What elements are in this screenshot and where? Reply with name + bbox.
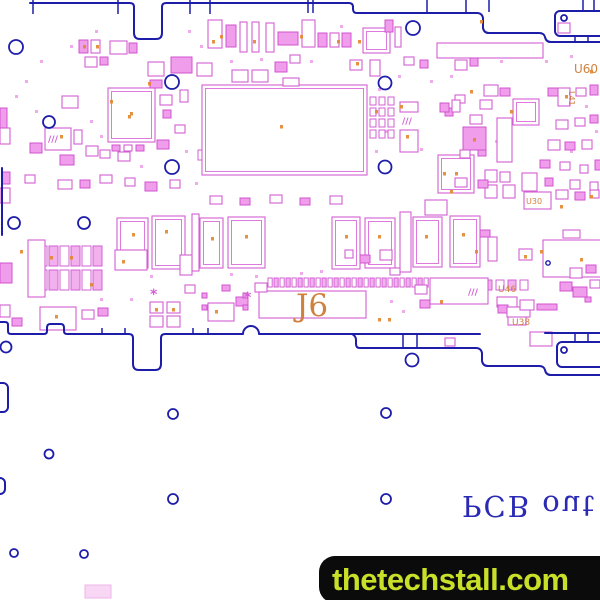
component-filled xyxy=(360,255,370,263)
pad-grid-pad xyxy=(379,108,385,116)
component-outline xyxy=(74,130,82,144)
pin-strip-pin xyxy=(60,246,69,266)
pin-strip-pin xyxy=(280,278,284,287)
pad-grid-pad xyxy=(388,97,394,105)
component-outline xyxy=(370,60,380,76)
component-filled xyxy=(2,172,10,184)
component-outline xyxy=(185,285,195,293)
micro-label-mark xyxy=(211,237,214,241)
via xyxy=(420,148,423,151)
micro-label-mark xyxy=(440,300,443,304)
pin-strip-pin xyxy=(520,280,528,290)
micro-label-mark xyxy=(280,125,283,129)
micro-label-mark xyxy=(565,95,568,99)
micro-label-mark xyxy=(560,205,563,209)
via xyxy=(230,273,233,276)
micro-label-mark xyxy=(245,235,248,239)
component-outline xyxy=(576,88,586,96)
component-outline xyxy=(82,310,94,319)
component-outline xyxy=(558,23,570,33)
pad-grid-pad xyxy=(379,130,385,138)
component-outline xyxy=(290,55,300,63)
component-filled xyxy=(420,60,428,68)
component-outline xyxy=(62,96,78,108)
component-outline xyxy=(580,165,588,173)
via xyxy=(40,60,43,63)
micro-label-mark xyxy=(50,256,53,260)
component-filled xyxy=(278,32,298,45)
component-outline xyxy=(560,162,570,170)
component-outline xyxy=(192,214,199,271)
via xyxy=(195,182,198,185)
via xyxy=(450,75,453,78)
component-outline xyxy=(520,300,534,310)
micro-label-mark xyxy=(128,115,131,119)
via xyxy=(595,130,598,133)
component-outline xyxy=(497,118,512,162)
pin-strip-pin xyxy=(286,278,290,287)
component-outline xyxy=(232,70,248,82)
component-filled xyxy=(585,297,591,302)
component-filled xyxy=(275,62,287,72)
component-outline xyxy=(460,150,470,158)
component-outline xyxy=(563,230,580,238)
component-filled xyxy=(240,198,250,205)
pin-strip-pin xyxy=(93,246,102,266)
component-outline xyxy=(556,120,568,129)
mounting-hole xyxy=(45,450,54,459)
component-symbol: * xyxy=(150,287,158,303)
via xyxy=(200,45,203,48)
component-filled xyxy=(590,85,598,95)
component-filled xyxy=(150,80,162,88)
mounting-hole xyxy=(379,161,392,174)
component-filled xyxy=(537,304,557,310)
pin-strip-pin xyxy=(298,278,302,287)
component-filled xyxy=(300,198,310,205)
via xyxy=(100,135,103,138)
via xyxy=(100,298,103,301)
micro-label-mark xyxy=(122,260,125,264)
component-filled xyxy=(60,155,74,165)
ref-designator-label: U46 xyxy=(498,285,516,295)
pad-grid-pad xyxy=(379,119,385,127)
pin-strip-pin xyxy=(310,278,314,287)
ref-designator-label: U30 xyxy=(526,197,542,206)
chip-outer xyxy=(332,217,360,269)
micro-label-mark xyxy=(400,105,403,109)
micro-label-mark xyxy=(378,235,381,239)
micro-label-mark xyxy=(590,195,593,199)
component-outline xyxy=(210,196,222,204)
component-outline xyxy=(488,237,497,261)
micro-label-mark xyxy=(406,135,409,139)
ref-designator-label: L41 xyxy=(567,91,576,106)
micro-label-mark xyxy=(300,35,303,39)
component-outline xyxy=(125,178,135,186)
via xyxy=(150,275,153,278)
component-outline xyxy=(437,43,543,58)
component-outline xyxy=(455,178,467,187)
micro-label-mark xyxy=(388,318,391,322)
component-symbol: /// xyxy=(48,135,59,145)
component-outline xyxy=(404,57,414,65)
via xyxy=(90,120,93,123)
component-outline xyxy=(590,182,598,190)
component-filled xyxy=(595,160,600,170)
component-filled xyxy=(30,143,42,153)
component-filled xyxy=(0,108,7,130)
component-filled xyxy=(470,58,478,66)
component-outline xyxy=(252,22,259,52)
component-filled xyxy=(222,285,230,291)
component-outline xyxy=(302,20,315,47)
component-outline xyxy=(115,250,147,270)
component-filled xyxy=(0,263,12,283)
component-filled xyxy=(80,180,90,188)
component-pale xyxy=(85,585,111,598)
pin-strip-pin xyxy=(334,278,338,287)
micro-label-mark xyxy=(130,112,133,116)
micro-label-mark xyxy=(356,62,359,66)
mounting-hole xyxy=(165,160,179,174)
component-outline xyxy=(0,128,10,144)
via xyxy=(185,150,188,153)
component-outline xyxy=(548,140,560,150)
component-outline xyxy=(575,118,585,126)
mounting-hole xyxy=(165,75,179,89)
component-filled xyxy=(157,140,169,149)
component-outline xyxy=(500,172,510,182)
component-outline xyxy=(167,316,180,327)
micro-label-mark xyxy=(425,235,428,239)
via xyxy=(545,60,548,63)
via xyxy=(70,45,73,48)
component-outline xyxy=(590,280,600,288)
component-filled xyxy=(202,305,207,310)
via xyxy=(25,80,28,83)
via xyxy=(390,300,393,303)
micro-label-mark xyxy=(470,90,473,94)
component-outline xyxy=(180,90,188,102)
component-outline xyxy=(85,57,97,67)
ref-designator-label: U60 xyxy=(574,62,598,76)
pin-strip-pin xyxy=(328,278,332,287)
component-outline xyxy=(415,285,427,294)
pin-strip-pin xyxy=(304,278,308,287)
micro-label-mark xyxy=(480,20,483,24)
via xyxy=(188,30,191,33)
mounting-hole xyxy=(561,15,567,21)
mounting-hole xyxy=(78,217,90,229)
component-filled xyxy=(342,33,351,47)
micro-label-mark xyxy=(132,233,135,237)
component-filled xyxy=(171,57,192,73)
mounting-hole xyxy=(10,549,18,557)
ref-designator-label: U38 xyxy=(512,318,530,328)
micro-label-mark xyxy=(450,190,453,194)
via xyxy=(310,60,313,63)
pin-strip-pin xyxy=(60,270,69,290)
pin-strip-pin xyxy=(316,278,320,287)
component-filled xyxy=(478,180,488,188)
component-filled xyxy=(136,145,144,151)
component-filled xyxy=(480,230,490,237)
micro-label-mark xyxy=(148,82,151,86)
via xyxy=(340,25,343,28)
component-filled xyxy=(163,110,171,118)
micro-label-mark xyxy=(443,172,446,176)
pin-strip-pin xyxy=(388,278,392,287)
micro-label-mark xyxy=(510,110,513,114)
component-filled xyxy=(420,300,430,308)
component-symbol: /// xyxy=(468,288,479,298)
micro-label-mark xyxy=(378,318,381,322)
component-symbol: /// xyxy=(402,117,413,127)
micro-label-mark xyxy=(96,45,99,49)
component-outline xyxy=(28,240,45,297)
component-outline xyxy=(86,146,98,156)
via xyxy=(260,58,263,61)
micro-label-mark xyxy=(212,40,215,44)
via xyxy=(15,95,18,98)
component-outline xyxy=(110,41,127,54)
component-outline xyxy=(240,22,247,52)
component-filled xyxy=(548,88,558,96)
pin-strip-pin xyxy=(370,278,374,287)
via xyxy=(402,310,405,313)
via xyxy=(230,60,233,63)
micro-label-mark xyxy=(540,250,543,254)
micro-label-mark xyxy=(83,45,86,49)
component-outline xyxy=(425,200,447,215)
pad-grid-pad xyxy=(370,97,376,105)
component-outline xyxy=(556,190,568,199)
component-outline xyxy=(400,212,411,272)
micro-label-mark xyxy=(90,283,93,287)
mounting-hole xyxy=(168,409,178,419)
component-filled xyxy=(478,150,486,156)
pin-strip-pin xyxy=(93,270,102,290)
mounting-hole xyxy=(1,342,12,353)
component-outline xyxy=(480,100,492,109)
component-outline xyxy=(582,140,592,149)
component-outline xyxy=(175,125,185,133)
component-outline xyxy=(430,278,488,304)
micro-label-mark xyxy=(345,235,348,239)
chip-outer xyxy=(202,85,367,175)
pad-grid-pad xyxy=(388,119,394,127)
component-filled xyxy=(12,318,22,326)
micro-label-mark xyxy=(70,256,73,260)
component-outline xyxy=(252,70,268,82)
pin-strip-pin xyxy=(71,270,80,290)
component-outline xyxy=(503,185,515,198)
component-filled xyxy=(590,115,598,123)
component-outline xyxy=(522,173,537,191)
component-outline xyxy=(208,303,234,321)
via xyxy=(95,30,98,33)
pin-strip-pin xyxy=(358,278,362,287)
component-filled xyxy=(202,293,207,298)
pin-strip-pin xyxy=(274,278,278,287)
component-outline xyxy=(400,130,418,152)
pin-strip-pin xyxy=(382,278,386,287)
mounting-hole xyxy=(381,494,391,504)
pin-strip-pin xyxy=(49,270,58,290)
component-filled xyxy=(226,25,236,47)
pin-strip-pin xyxy=(352,278,356,287)
connector-outline xyxy=(0,478,5,494)
via xyxy=(570,55,573,58)
component-outline xyxy=(530,332,552,346)
micro-label-mark xyxy=(358,40,361,44)
pin-strip-pin xyxy=(364,278,368,287)
pin-strip-pin xyxy=(292,278,296,287)
pin-strip-pin xyxy=(400,278,404,287)
micro-label-mark xyxy=(462,233,465,237)
mounting-hole xyxy=(43,116,55,128)
via xyxy=(500,60,503,63)
component-filled xyxy=(575,192,585,200)
pin-strip-pin xyxy=(322,278,326,287)
chip-outer xyxy=(450,216,480,267)
component-outline xyxy=(330,196,342,204)
component-filled xyxy=(565,142,575,150)
via xyxy=(140,165,143,168)
component-outline xyxy=(390,268,400,275)
mounting-hole xyxy=(80,550,88,558)
component-outline xyxy=(150,316,163,327)
component-outline xyxy=(208,20,222,48)
watermark-banner: thetechstall.com xyxy=(319,556,600,600)
connector-outline xyxy=(0,383,8,412)
mounting-hole xyxy=(406,354,419,367)
micro-label-mark xyxy=(215,310,218,314)
component-filled xyxy=(112,145,120,151)
component-filled xyxy=(573,287,587,297)
ref-designator-label: J6 xyxy=(293,288,328,324)
component-outline xyxy=(0,305,10,317)
micro-label-mark xyxy=(20,250,23,254)
component-outline xyxy=(283,78,299,86)
pin-strip-pin xyxy=(376,278,380,287)
mounting-hole xyxy=(379,77,392,90)
pin-strip-pin xyxy=(268,278,272,287)
micro-label-mark xyxy=(455,172,458,176)
via xyxy=(585,105,588,108)
component-filled xyxy=(500,88,510,96)
component-outline xyxy=(180,255,192,275)
component-outline xyxy=(25,175,35,183)
mounting-hole xyxy=(9,40,23,54)
via xyxy=(35,110,38,113)
micro-label-mark xyxy=(155,308,158,312)
component-filled xyxy=(440,103,449,112)
component-outline xyxy=(470,115,482,124)
component-outline xyxy=(445,338,455,346)
component-filled xyxy=(560,282,572,291)
pad-grid-pad xyxy=(388,130,394,138)
micro-label-mark xyxy=(172,308,175,312)
component-outline xyxy=(270,195,282,203)
component-outline xyxy=(266,23,274,52)
pad-grid-pad xyxy=(370,119,376,127)
pin-strip-pin xyxy=(340,278,344,287)
pin-strip-pin xyxy=(406,278,410,287)
board-outline xyxy=(352,334,600,375)
pin-strip-pin xyxy=(82,270,91,290)
pin-strip-pin xyxy=(82,246,91,266)
micro-label-mark xyxy=(475,250,478,254)
component-symbol: * xyxy=(244,290,252,306)
pad-grid-pad xyxy=(370,130,376,138)
micro-label-mark xyxy=(524,255,527,259)
component-filled xyxy=(586,265,596,273)
connector-outline xyxy=(557,342,600,367)
component-outline xyxy=(118,152,130,161)
mounting-hole xyxy=(381,408,391,418)
micro-label-mark xyxy=(220,35,223,39)
via xyxy=(320,270,323,273)
mounting-hole xyxy=(8,217,20,229)
component-filled xyxy=(98,308,108,316)
micro-label-mark xyxy=(375,110,378,114)
component-filled xyxy=(385,20,393,32)
mounting-hole xyxy=(561,347,567,353)
component-outline xyxy=(455,60,467,70)
chip-outer xyxy=(228,217,265,268)
component-filled xyxy=(145,182,157,191)
component-filled xyxy=(545,178,553,186)
pcb-out-mirrored-text: PCB out xyxy=(462,487,600,523)
pad-grid-pad xyxy=(379,97,385,105)
component-outline xyxy=(255,283,267,292)
mounting-hole xyxy=(168,494,178,504)
micro-label-mark xyxy=(590,70,593,74)
component-outline xyxy=(380,250,392,260)
micro-label-mark xyxy=(473,138,476,142)
micro-label-mark xyxy=(337,40,340,44)
component-outline xyxy=(160,95,172,105)
micro-label-mark xyxy=(110,100,113,104)
component-outline xyxy=(395,27,401,47)
micro-label-mark xyxy=(165,230,168,234)
component-outline xyxy=(197,63,212,76)
via xyxy=(375,150,378,153)
micro-label-mark xyxy=(253,40,256,44)
pin-strip-pin xyxy=(394,278,398,287)
component-outline xyxy=(124,145,132,151)
component-outline xyxy=(570,180,580,189)
component-outline xyxy=(484,85,498,96)
via xyxy=(430,80,433,83)
component-outline xyxy=(148,62,164,76)
component-filled xyxy=(129,43,137,53)
component-outline xyxy=(58,180,72,189)
chip-outer xyxy=(413,217,442,267)
micro-label-mark xyxy=(60,135,63,139)
component-filled xyxy=(540,160,550,168)
component-outline xyxy=(345,250,353,258)
via xyxy=(398,75,401,78)
component-outline xyxy=(100,175,112,183)
watermark-text: thetechstall.com xyxy=(332,562,569,598)
micro-label-mark xyxy=(580,258,583,262)
pin-strip-pin xyxy=(346,278,350,287)
via xyxy=(255,275,258,278)
component-outline xyxy=(100,150,110,158)
